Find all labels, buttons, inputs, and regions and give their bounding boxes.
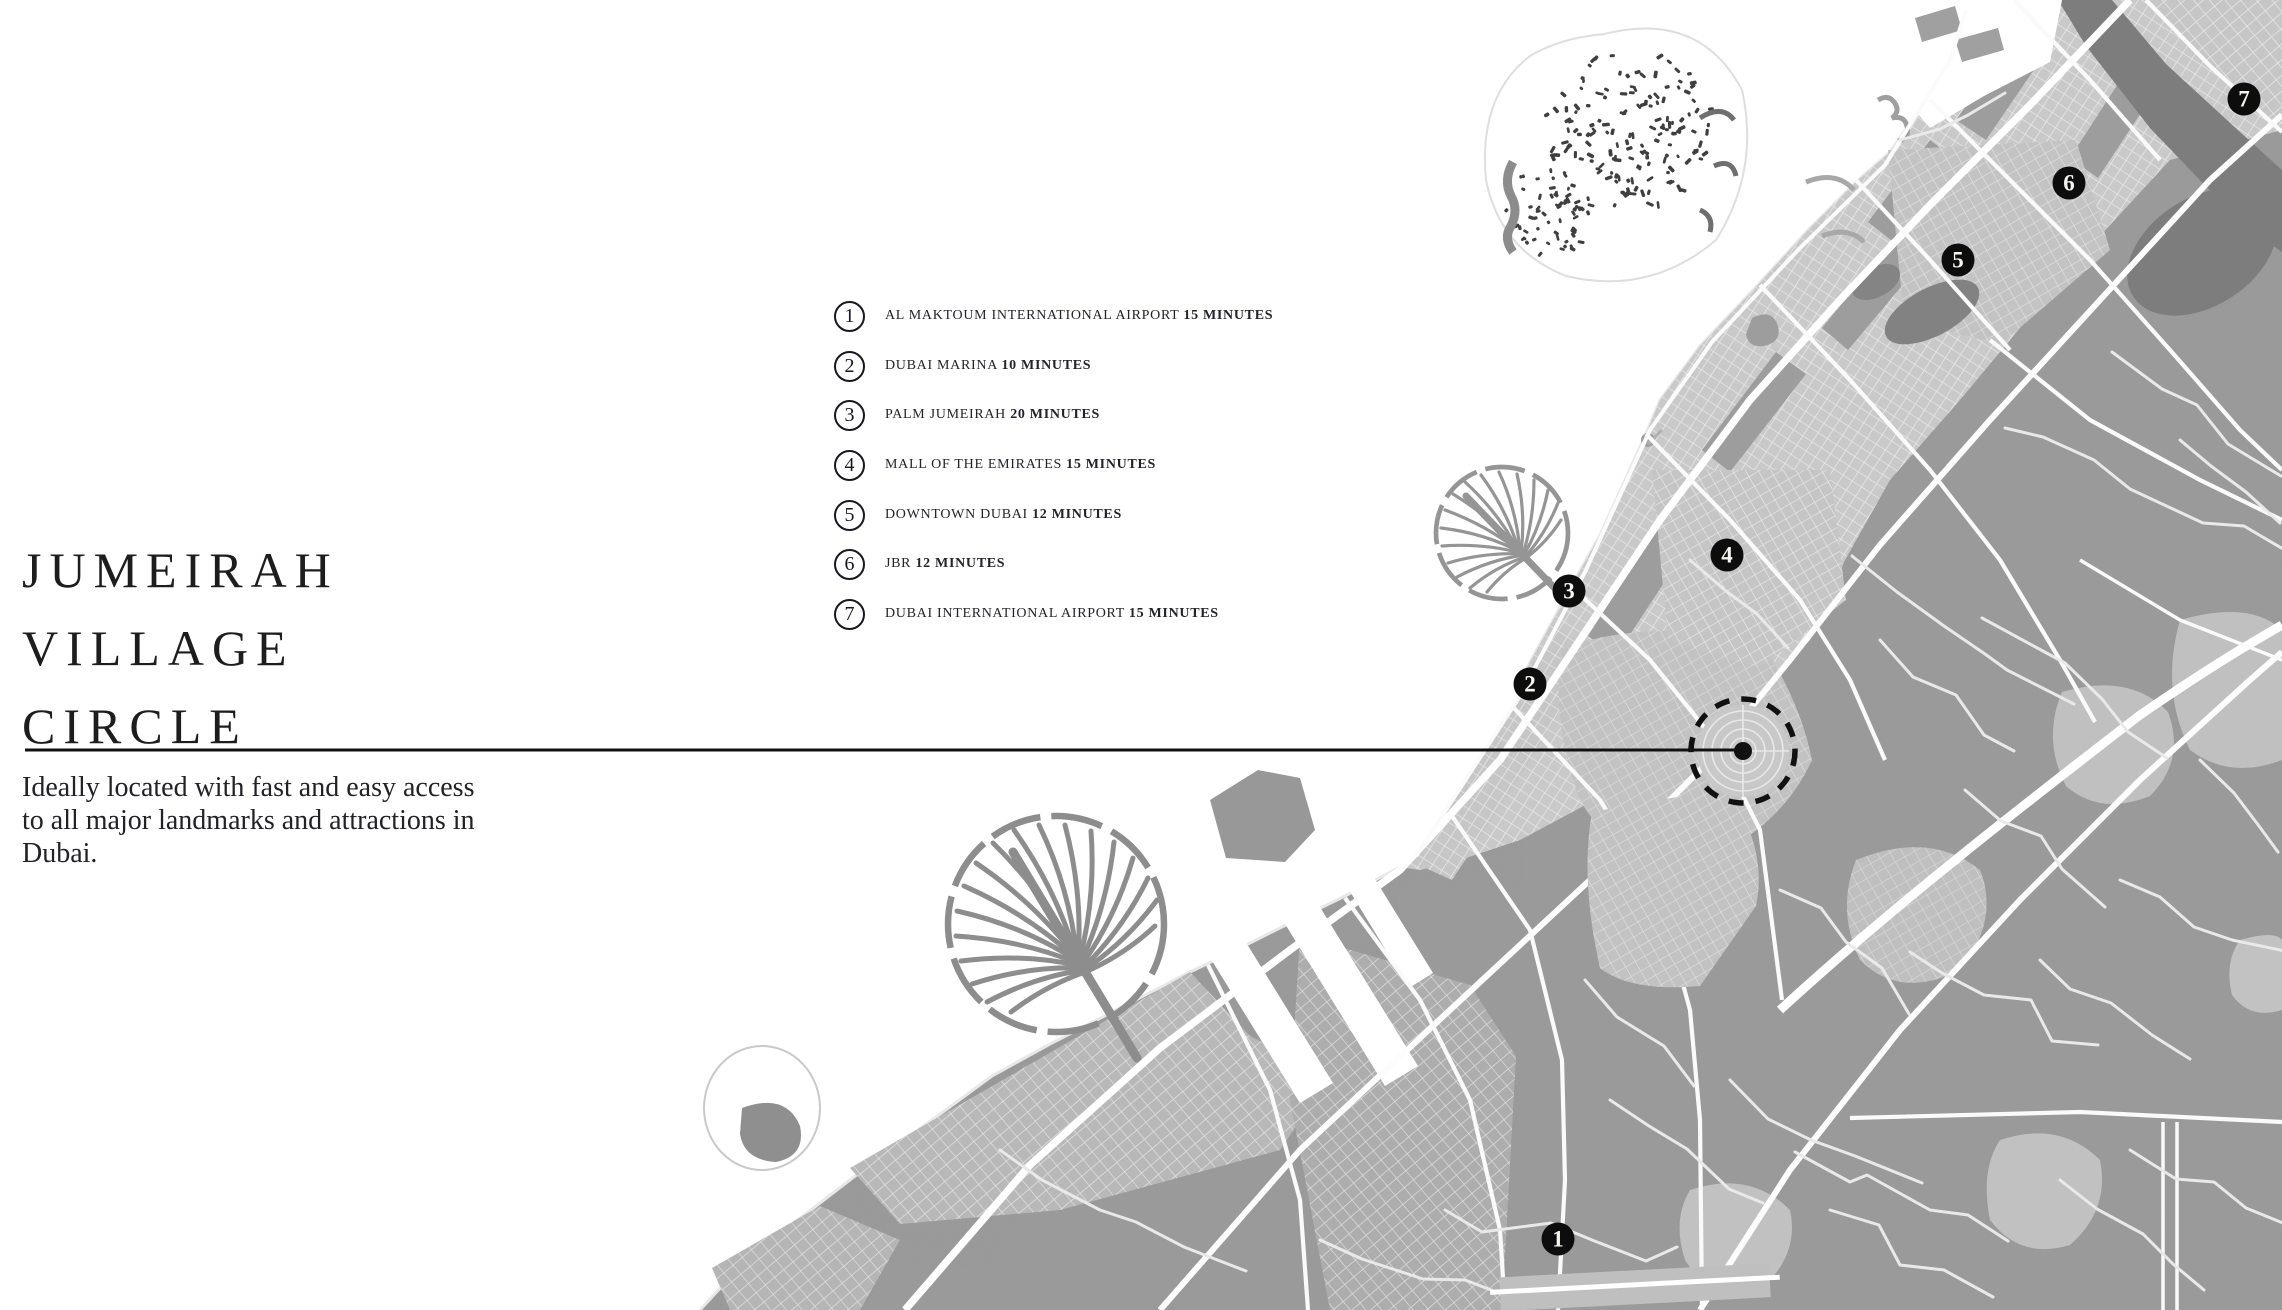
svg-text:6: 6 [2063,171,2075,196]
svg-text:1: 1 [1552,1227,1564,1252]
svg-text:5: 5 [1952,248,1964,273]
svg-text:7: 7 [2238,87,2250,112]
svg-text:4: 4 [1721,543,1733,568]
svg-text:2: 2 [1524,672,1536,697]
svg-text:3: 3 [1563,579,1575,604]
